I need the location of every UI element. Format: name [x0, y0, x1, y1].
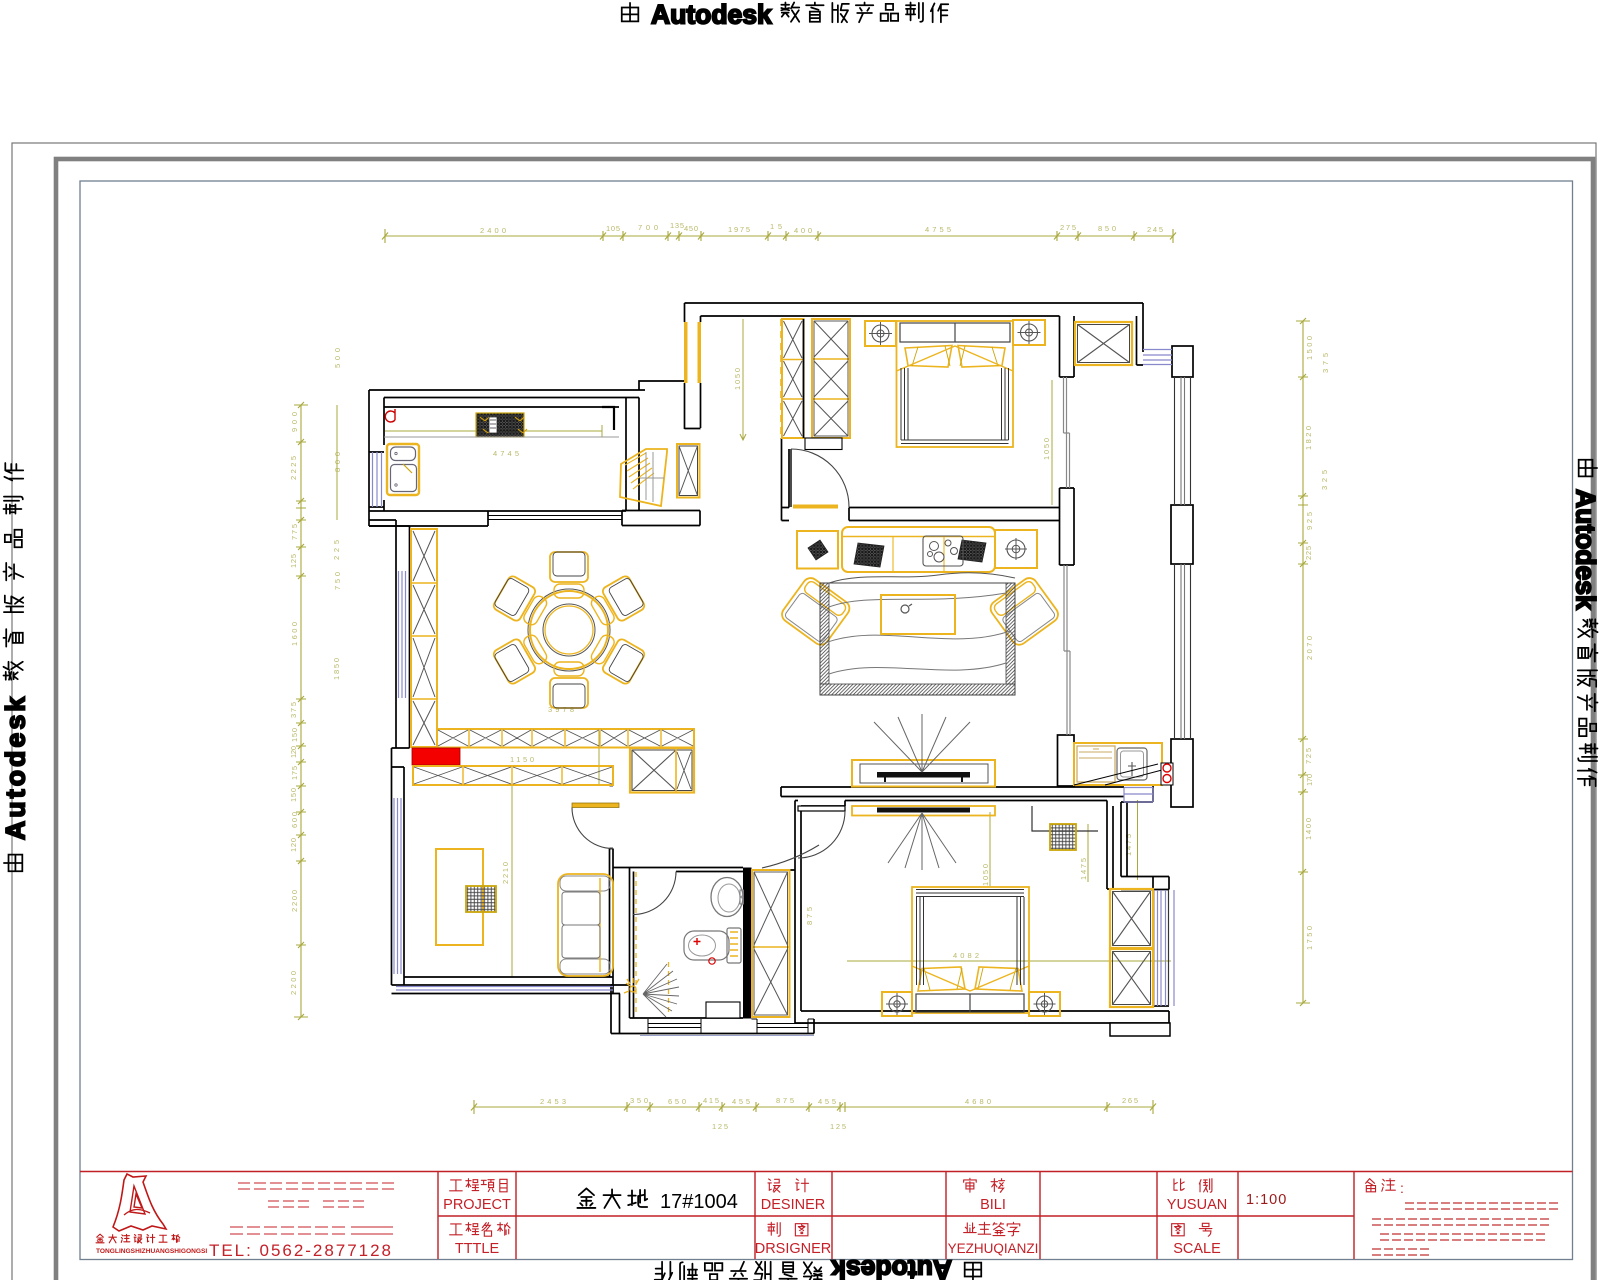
svg-text:DRSIGNER: DRSIGNER	[755, 1241, 832, 1257]
svg-text:1975: 1975	[728, 225, 750, 234]
svg-text:105: 105	[606, 224, 620, 233]
svg-text:375: 375	[289, 702, 298, 718]
svg-text:875: 875	[776, 1096, 794, 1105]
svg-text:150: 150	[289, 788, 298, 802]
svg-text:170: 170	[1305, 774, 1314, 786]
svg-text:265: 265	[1122, 1096, 1138, 1105]
svg-text:125: 125	[830, 1122, 846, 1131]
svg-text:TTTLE: TTTLE	[455, 1241, 500, 1257]
svg-text:1050: 1050	[981, 864, 990, 886]
svg-text:750: 750	[333, 572, 342, 590]
svg-text:600: 600	[290, 812, 299, 828]
svg-text:Autodesk: Autodesk	[651, 0, 772, 30]
svg-text:TEL: 0562-2877128: TEL: 0562-2877128	[209, 1241, 391, 1260]
svg-text:125: 125	[289, 554, 298, 568]
svg-text:325: 325	[1320, 470, 1329, 490]
svg-text:275: 275	[1060, 223, 1076, 232]
svg-text:700: 700	[638, 223, 658, 232]
svg-text:175: 175	[290, 766, 299, 780]
svg-text:120: 120	[289, 746, 298, 758]
svg-text:1400: 1400	[1304, 818, 1313, 840]
svg-text:125: 125	[712, 1122, 728, 1131]
svg-text:Autodesk: Autodesk	[831, 1255, 952, 1280]
svg-text:Autodesk: Autodesk	[1, 694, 31, 840]
svg-text:150: 150	[290, 728, 299, 742]
svg-text:650: 650	[668, 1097, 686, 1106]
svg-text::: :	[1400, 1180, 1404, 1196]
svg-text:2210: 2210	[501, 862, 510, 884]
svg-text:TONGLINGSHIZHUANGSHIGONGSI: TONGLINGSHIZHUANGSHIGONGSI	[96, 1248, 207, 1255]
svg-text:400: 400	[794, 226, 812, 235]
svg-text:1050: 1050	[1042, 438, 1051, 460]
svg-text:1475: 1475	[1079, 858, 1088, 880]
svg-text:350: 350	[630, 1096, 648, 1105]
svg-text:775: 775	[290, 524, 299, 540]
svg-text:500: 500	[333, 348, 342, 368]
svg-text:225: 225	[332, 540, 341, 560]
svg-text:2200: 2200	[290, 890, 299, 912]
svg-text:415: 415	[703, 1096, 719, 1105]
svg-text:455: 455	[732, 1097, 750, 1106]
svg-text:BILI: BILI	[980, 1197, 1006, 1213]
svg-text:225: 225	[1304, 546, 1313, 560]
svg-text:375: 375	[1321, 353, 1330, 373]
svg-text:450: 450	[684, 224, 698, 233]
svg-text:455: 455	[818, 1097, 836, 1106]
svg-text:875: 875	[805, 907, 814, 925]
svg-text:1850: 1850	[332, 658, 341, 680]
svg-text:120: 120	[289, 838, 298, 852]
svg-text:245: 245	[1147, 225, 1163, 234]
svg-text:900: 900	[290, 412, 299, 432]
svg-text:Autodesk: Autodesk	[1571, 489, 1600, 610]
svg-text:725: 725	[1304, 748, 1313, 764]
svg-text:1475: 1475	[1124, 834, 1133, 856]
svg-text:YUSUAN: YUSUAN	[1167, 1197, 1227, 1213]
svg-text:DESINER: DESINER	[761, 1197, 825, 1213]
svg-text:YEZHUQIANZI: YEZHUQIANZI	[948, 1241, 1039, 1256]
svg-text:SCALE: SCALE	[1173, 1241, 1221, 1257]
svg-text:135: 135	[670, 221, 684, 230]
svg-text:PROJECT: PROJECT	[443, 1197, 511, 1213]
svg-text:1050: 1050	[733, 368, 742, 390]
svg-text:1:100: 1:100	[1246, 1192, 1287, 1208]
svg-text:850: 850	[1098, 224, 1116, 233]
svg-text:925: 925	[1305, 512, 1314, 530]
svg-text:17#1004: 17#1004	[660, 1191, 738, 1213]
